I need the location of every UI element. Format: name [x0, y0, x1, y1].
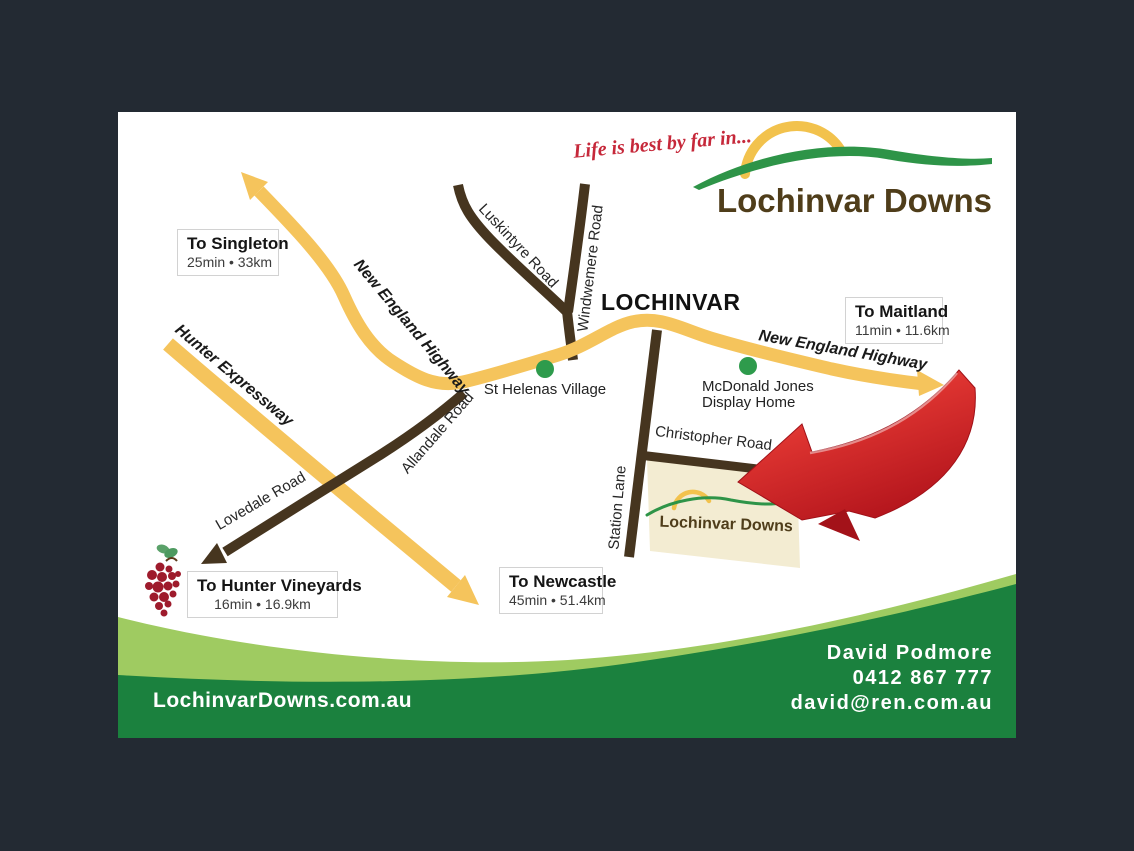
destination-box-singleton: To Singleton 25min • 33km	[177, 229, 279, 276]
destination-title: To Newcastle	[509, 571, 593, 592]
agent-phone[interactable]: 0412 867 777	[791, 666, 993, 691]
mcdonald-jones-line1: McDonald Jones	[702, 379, 814, 395]
destination-title: To Singleton	[187, 233, 269, 254]
mcdonald-jones-dot-icon	[739, 357, 757, 375]
destination-box-hunter-vineyards: To Hunter Vineyards 16min • 16.9km	[187, 571, 338, 618]
brand-logo-text: Lochinvar Downs	[717, 182, 992, 220]
agent-name: David Podmore	[791, 641, 993, 666]
mcdonald-jones-label: McDonald Jones Display Home	[702, 379, 814, 411]
destination-title: To Hunter Vineyards	[197, 575, 328, 596]
christopher-road-label: Christopher Road	[654, 423, 773, 454]
destination-detail: 16min • 16.9km	[197, 596, 328, 613]
agent-contact-block: David Podmore 0412 867 777 david@ren.com…	[791, 641, 993, 716]
flyer-card: Lochinvar Downs New England Highway New …	[118, 112, 1016, 738]
mcdonald-jones-line2: Display Home	[702, 395, 814, 411]
destination-detail: 45min • 51.4km	[509, 592, 593, 609]
destination-title: To Maitland	[855, 301, 933, 322]
vineyards-arrowhead-icon	[201, 543, 227, 564]
st-helenas-label: St Helenas Village	[455, 381, 635, 398]
destination-detail: 11min • 11.6km	[855, 322, 933, 339]
st-helenas-dot-icon	[536, 360, 554, 378]
destination-box-newcastle: To Newcastle 45min • 51.4km	[499, 567, 603, 614]
agent-email[interactable]: david@ren.com.au	[791, 691, 993, 716]
website-link[interactable]: LochinvarDowns.com.au	[153, 689, 412, 713]
town-label: LOCHINVAR	[601, 289, 741, 316]
destination-box-maitland: To Maitland 11min • 11.6km	[845, 297, 943, 344]
grapes-icon	[145, 543, 181, 617]
station-lane-label: Station Lane	[605, 465, 629, 550]
destination-detail: 25min • 33km	[187, 254, 269, 271]
luskintyre-road-label: Luskintyre Road	[475, 200, 561, 291]
hunter-expressway-label: Hunter Expressway	[172, 321, 298, 430]
